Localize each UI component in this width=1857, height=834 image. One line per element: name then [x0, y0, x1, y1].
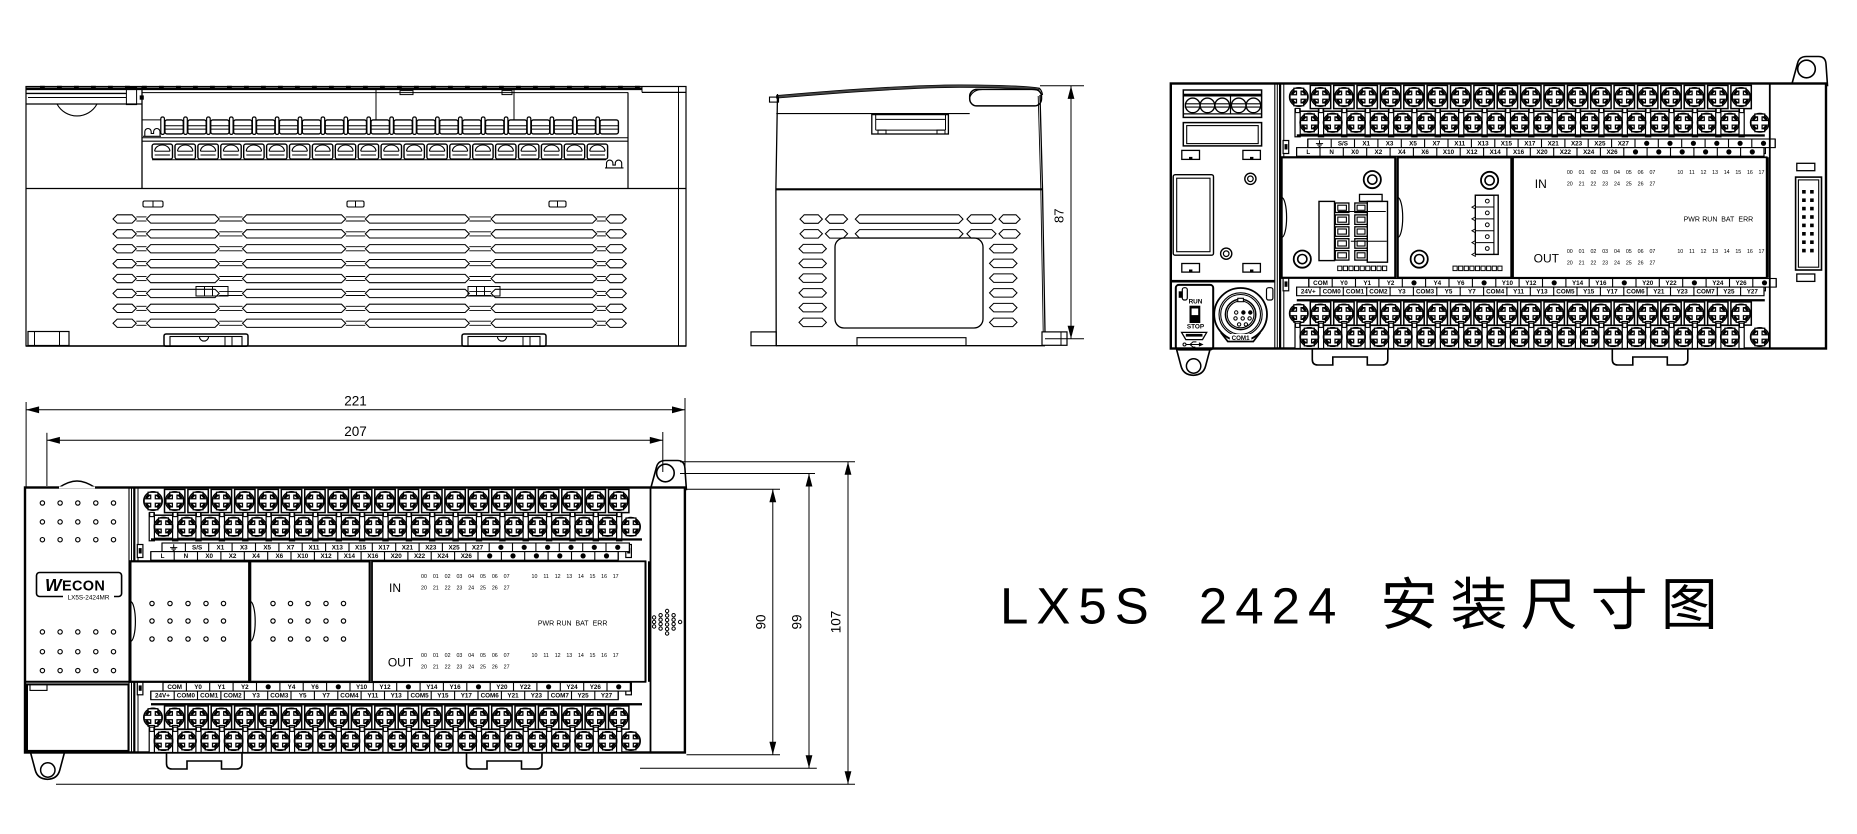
svg-text:16: 16 [1747, 170, 1753, 176]
svg-text:Y0: Y0 [194, 684, 202, 691]
svg-text:15: 15 [590, 653, 596, 659]
svg-text:25: 25 [480, 586, 486, 592]
svg-text:X17: X17 [378, 545, 390, 552]
svg-text:13: 13 [1712, 249, 1718, 255]
svg-text:X0: X0 [205, 553, 213, 560]
svg-text:LX5S 2424: LX5S 2424 [1000, 578, 1344, 635]
svg-text:11: 11 [543, 653, 549, 659]
svg-text:11: 11 [1689, 170, 1695, 176]
svg-text:23: 23 [1602, 261, 1608, 267]
svg-text:25: 25 [1626, 182, 1632, 188]
svg-text:X13: X13 [1477, 141, 1489, 148]
svg-text:Y13: Y13 [1536, 289, 1548, 296]
svg-text:04: 04 [1614, 170, 1620, 176]
svg-text:05: 05 [480, 653, 486, 659]
svg-text:26: 26 [492, 586, 498, 592]
svg-text:107: 107 [829, 611, 844, 634]
svg-text:13: 13 [566, 574, 572, 580]
svg-text:Y13: Y13 [391, 693, 403, 700]
svg-text:COM1: COM1 [200, 693, 219, 700]
svg-text:Y14: Y14 [1572, 280, 1584, 287]
svg-text:X22: X22 [1560, 149, 1572, 156]
svg-text:L: L [1306, 149, 1310, 156]
svg-text:Y15: Y15 [437, 693, 449, 700]
svg-text:22: 22 [445, 665, 451, 671]
svg-text:Y16: Y16 [1595, 280, 1607, 287]
svg-text:02: 02 [1590, 249, 1596, 255]
svg-text:13: 13 [566, 653, 572, 659]
svg-text:05: 05 [1626, 249, 1632, 255]
svg-text:BAT: BAT [575, 621, 589, 628]
svg-text:RUN: RUN [1189, 299, 1203, 306]
svg-text:01: 01 [1579, 170, 1585, 176]
svg-text:04: 04 [468, 574, 474, 580]
svg-text:X0: X0 [1351, 149, 1359, 156]
svg-text:Y4: Y4 [1433, 280, 1441, 287]
svg-text:BAT: BAT [1721, 217, 1735, 224]
svg-text:00: 00 [1567, 170, 1573, 176]
svg-text:COM1: COM1 [1346, 289, 1365, 296]
svg-text:02: 02 [445, 653, 451, 659]
svg-text:PWR: PWR [1684, 217, 1700, 224]
svg-text:90: 90 [754, 614, 769, 629]
svg-text:Y15: Y15 [1583, 289, 1595, 296]
svg-text:Y26: Y26 [590, 684, 602, 691]
svg-text:X26: X26 [1606, 149, 1618, 156]
svg-text:12: 12 [555, 574, 561, 580]
svg-text:16: 16 [601, 574, 607, 580]
svg-text:COM: COM [1313, 280, 1328, 287]
svg-text:03: 03 [1602, 170, 1608, 176]
svg-text:L: L [161, 553, 165, 560]
svg-text:Y5: Y5 [299, 693, 307, 700]
svg-text:04: 04 [468, 653, 474, 659]
svg-text:ECON: ECON [62, 579, 105, 595]
svg-text:X26: X26 [461, 553, 473, 560]
svg-text:COM5: COM5 [1556, 289, 1575, 296]
svg-text:COM7: COM7 [1696, 289, 1715, 296]
svg-text:07: 07 [504, 574, 510, 580]
svg-text:01: 01 [433, 653, 439, 659]
svg-text:X7: X7 [287, 545, 295, 552]
svg-text:11: 11 [543, 574, 549, 580]
svg-text:10: 10 [1677, 170, 1683, 176]
svg-text:Y2: Y2 [241, 684, 249, 691]
svg-text:27: 27 [504, 586, 510, 592]
svg-text:Y6: Y6 [1457, 280, 1465, 287]
svg-text:COM5: COM5 [410, 693, 429, 700]
svg-text:06: 06 [1638, 170, 1644, 176]
svg-text:COM4: COM4 [1486, 289, 1505, 296]
svg-text:X1: X1 [1362, 141, 1370, 148]
svg-text:COM: COM [167, 684, 182, 691]
svg-text:16: 16 [601, 653, 607, 659]
svg-text:24V+: 24V+ [1301, 289, 1316, 296]
svg-text:X6: X6 [275, 553, 283, 560]
svg-text:04: 04 [1614, 249, 1620, 255]
svg-text:COM7: COM7 [551, 693, 570, 700]
svg-text:COM2: COM2 [1369, 289, 1388, 296]
svg-text:IN: IN [389, 581, 401, 595]
svg-text:00: 00 [421, 574, 427, 580]
svg-text:X27: X27 [472, 545, 484, 552]
svg-text:Y3: Y3 [1398, 289, 1406, 296]
svg-text:Y11: Y11 [1513, 289, 1524, 296]
svg-text:COM4: COM4 [340, 693, 359, 700]
svg-text:Y12: Y12 [1525, 280, 1537, 287]
svg-text:ERR: ERR [593, 621, 608, 628]
svg-text:20: 20 [1567, 261, 1573, 267]
svg-text:X24: X24 [1583, 149, 1595, 156]
svg-text:Y20: Y20 [1642, 280, 1654, 287]
svg-text:COM6: COM6 [1626, 289, 1645, 296]
svg-text:14: 14 [578, 574, 584, 580]
svg-text:01: 01 [1579, 249, 1585, 255]
svg-text:26: 26 [492, 665, 498, 671]
svg-text:X22: X22 [414, 553, 426, 560]
svg-text:X16: X16 [1513, 149, 1525, 156]
svg-text:20: 20 [1567, 182, 1573, 188]
svg-text:03: 03 [456, 574, 462, 580]
svg-text:ERR: ERR [1738, 217, 1753, 224]
svg-text:10: 10 [1677, 249, 1683, 255]
svg-text:OUT: OUT [388, 656, 414, 670]
svg-text:X14: X14 [344, 553, 356, 560]
svg-text:X11: X11 [1454, 141, 1465, 148]
svg-text:24V+: 24V+ [155, 693, 170, 700]
svg-text:14: 14 [1724, 170, 1730, 176]
svg-text:X11: X11 [308, 545, 319, 552]
svg-text:17: 17 [613, 653, 619, 659]
svg-text:X25: X25 [1594, 141, 1606, 148]
svg-text:Y5: Y5 [1445, 289, 1453, 296]
svg-text:X14: X14 [1490, 149, 1502, 156]
svg-text:PWR: PWR [538, 621, 554, 628]
svg-text:Y24: Y24 [1712, 280, 1724, 287]
svg-text:25: 25 [480, 665, 486, 671]
svg-text:27: 27 [1649, 182, 1655, 188]
svg-text:X6: X6 [1421, 149, 1429, 156]
svg-text:X23: X23 [1571, 141, 1583, 148]
svg-text:03: 03 [1602, 249, 1608, 255]
svg-text:OUT: OUT [1534, 252, 1560, 266]
svg-text:Y20: Y20 [496, 684, 508, 691]
svg-text:23: 23 [1602, 182, 1608, 188]
svg-text:Y21: Y21 [1653, 289, 1665, 296]
svg-text:N: N [184, 553, 189, 560]
svg-text:COM6: COM6 [481, 693, 500, 700]
svg-text:27: 27 [504, 665, 510, 671]
svg-text:21: 21 [433, 665, 439, 671]
svg-text:Y27: Y27 [601, 693, 613, 700]
svg-text:S/S: S/S [1338, 141, 1348, 148]
svg-text:07: 07 [1649, 249, 1655, 255]
svg-text:COM2: COM2 [223, 693, 242, 700]
svg-text:Y3: Y3 [252, 693, 260, 700]
svg-text:RUN: RUN [556, 621, 571, 628]
svg-text:X12: X12 [320, 553, 332, 560]
svg-text:Y7: Y7 [1468, 289, 1476, 296]
svg-text:X20: X20 [1536, 149, 1548, 156]
svg-text:X2: X2 [1375, 149, 1383, 156]
svg-text:X1: X1 [217, 545, 225, 552]
svg-text:W: W [45, 575, 63, 595]
svg-text:Y23: Y23 [1677, 289, 1689, 296]
svg-text:X5: X5 [1409, 141, 1417, 148]
svg-text:COM3: COM3 [270, 693, 289, 700]
svg-text:20: 20 [421, 665, 427, 671]
svg-text:IN: IN [1535, 177, 1547, 191]
svg-text:05: 05 [480, 574, 486, 580]
svg-text:22: 22 [1590, 182, 1596, 188]
svg-text:12: 12 [1701, 170, 1707, 176]
svg-text:X10: X10 [297, 553, 309, 560]
svg-text:Y21: Y21 [507, 693, 519, 700]
svg-text:Y22: Y22 [1665, 280, 1677, 287]
svg-text:X21: X21 [1548, 141, 1560, 148]
svg-text:X4: X4 [1398, 149, 1406, 156]
svg-text:14: 14 [578, 653, 584, 659]
svg-text:X2: X2 [229, 553, 237, 560]
svg-text:17: 17 [1759, 249, 1765, 255]
svg-text:X27: X27 [1618, 141, 1630, 148]
svg-text:10: 10 [532, 574, 538, 580]
svg-text:X20: X20 [391, 553, 403, 560]
svg-text:Y1: Y1 [218, 684, 226, 691]
svg-text:Y10: Y10 [356, 684, 368, 691]
svg-text:Y12: Y12 [379, 684, 391, 691]
svg-text:00: 00 [1567, 249, 1573, 255]
svg-text:X3: X3 [240, 545, 248, 552]
svg-text:12: 12 [555, 653, 561, 659]
svg-text:X17: X17 [1524, 141, 1536, 148]
svg-text:X16: X16 [367, 553, 379, 560]
svg-text:17: 17 [1759, 170, 1765, 176]
svg-text:24: 24 [468, 586, 474, 592]
svg-text:X7: X7 [1432, 141, 1440, 148]
svg-text:15: 15 [590, 574, 596, 580]
svg-text:Y16: Y16 [449, 684, 461, 691]
svg-text:05: 05 [1626, 170, 1632, 176]
svg-text:25: 25 [1626, 261, 1632, 267]
svg-text:23: 23 [456, 665, 462, 671]
svg-text:Y4: Y4 [288, 684, 296, 691]
svg-text:17: 17 [613, 574, 619, 580]
svg-text:03: 03 [456, 653, 462, 659]
svg-text:Y6: Y6 [311, 684, 319, 691]
svg-text:26: 26 [1638, 182, 1644, 188]
svg-text:RUN: RUN [1702, 217, 1717, 224]
svg-text:207: 207 [344, 424, 367, 439]
svg-text:X10: X10 [1443, 149, 1455, 156]
svg-text:23: 23 [456, 586, 462, 592]
svg-text:Y1: Y1 [1363, 280, 1371, 287]
svg-text:Y24: Y24 [566, 684, 578, 691]
svg-text:Y23: Y23 [531, 693, 543, 700]
svg-text:X13: X13 [332, 545, 344, 552]
svg-text:15: 15 [1735, 170, 1741, 176]
svg-text:COM1: COM1 [1232, 335, 1250, 342]
svg-text:Y0: Y0 [1340, 280, 1348, 287]
svg-text:Y2: Y2 [1387, 280, 1395, 287]
svg-text:Y17: Y17 [461, 693, 473, 700]
svg-text:11: 11 [1689, 249, 1695, 255]
svg-text:X24: X24 [437, 553, 449, 560]
svg-text:07: 07 [504, 653, 510, 659]
svg-text:14: 14 [1724, 249, 1730, 255]
svg-text:X4: X4 [252, 553, 260, 560]
svg-text:Y10: Y10 [1502, 280, 1514, 287]
svg-text:21: 21 [433, 586, 439, 592]
svg-text:87: 87 [1052, 209, 1067, 223]
svg-text:X25: X25 [448, 545, 460, 552]
svg-text:COM0: COM0 [1323, 289, 1342, 296]
svg-text:12: 12 [1701, 249, 1707, 255]
svg-text:26: 26 [1638, 261, 1644, 267]
svg-text:X12: X12 [1466, 149, 1478, 156]
svg-text:06: 06 [492, 653, 498, 659]
svg-text:21: 21 [1579, 261, 1585, 267]
svg-text:X21: X21 [402, 545, 414, 552]
svg-text:21: 21 [1579, 182, 1585, 188]
svg-text:Y25: Y25 [577, 693, 589, 700]
svg-text:24: 24 [1614, 261, 1620, 267]
svg-text:13: 13 [1712, 170, 1718, 176]
svg-text:221: 221 [344, 393, 367, 408]
svg-text:X15: X15 [1501, 141, 1513, 148]
svg-text:S/S: S/S [192, 545, 202, 552]
svg-text:Y25: Y25 [1723, 289, 1735, 296]
svg-text:Y7: Y7 [322, 693, 330, 700]
svg-text:15: 15 [1735, 249, 1741, 255]
svg-text:99: 99 [790, 614, 805, 629]
svg-text:20: 20 [421, 586, 427, 592]
svg-text:00: 00 [421, 653, 427, 659]
svg-text:01: 01 [433, 574, 439, 580]
svg-text:16: 16 [1747, 249, 1753, 255]
svg-text:Y22: Y22 [520, 684, 532, 691]
svg-text:06: 06 [492, 574, 498, 580]
svg-text:X23: X23 [425, 545, 437, 552]
svg-text:02: 02 [445, 574, 451, 580]
svg-text:COM0: COM0 [177, 693, 196, 700]
svg-text:27: 27 [1649, 261, 1655, 267]
svg-text:Y26: Y26 [1735, 280, 1747, 287]
svg-text:24: 24 [1614, 182, 1620, 188]
svg-text:N: N [1329, 149, 1334, 156]
svg-text:22: 22 [445, 586, 451, 592]
svg-text:Y27: Y27 [1747, 289, 1759, 296]
svg-text:10: 10 [532, 653, 538, 659]
svg-text:X15: X15 [355, 545, 367, 552]
svg-text:X3: X3 [1386, 141, 1394, 148]
svg-text:LX5S-2424MR: LX5S-2424MR [68, 595, 110, 602]
svg-text:STOP: STOP [1187, 324, 1205, 331]
svg-text:07: 07 [1649, 170, 1655, 176]
svg-text:Y17: Y17 [1606, 289, 1618, 296]
svg-text:Y11: Y11 [367, 693, 378, 700]
svg-text:Y14: Y14 [426, 684, 438, 691]
svg-text:COM3: COM3 [1416, 289, 1435, 296]
svg-text:24: 24 [468, 665, 474, 671]
svg-text:06: 06 [1638, 249, 1644, 255]
svg-text:22: 22 [1590, 261, 1596, 267]
svg-text:X5: X5 [263, 545, 271, 552]
svg-text:02: 02 [1590, 170, 1596, 176]
